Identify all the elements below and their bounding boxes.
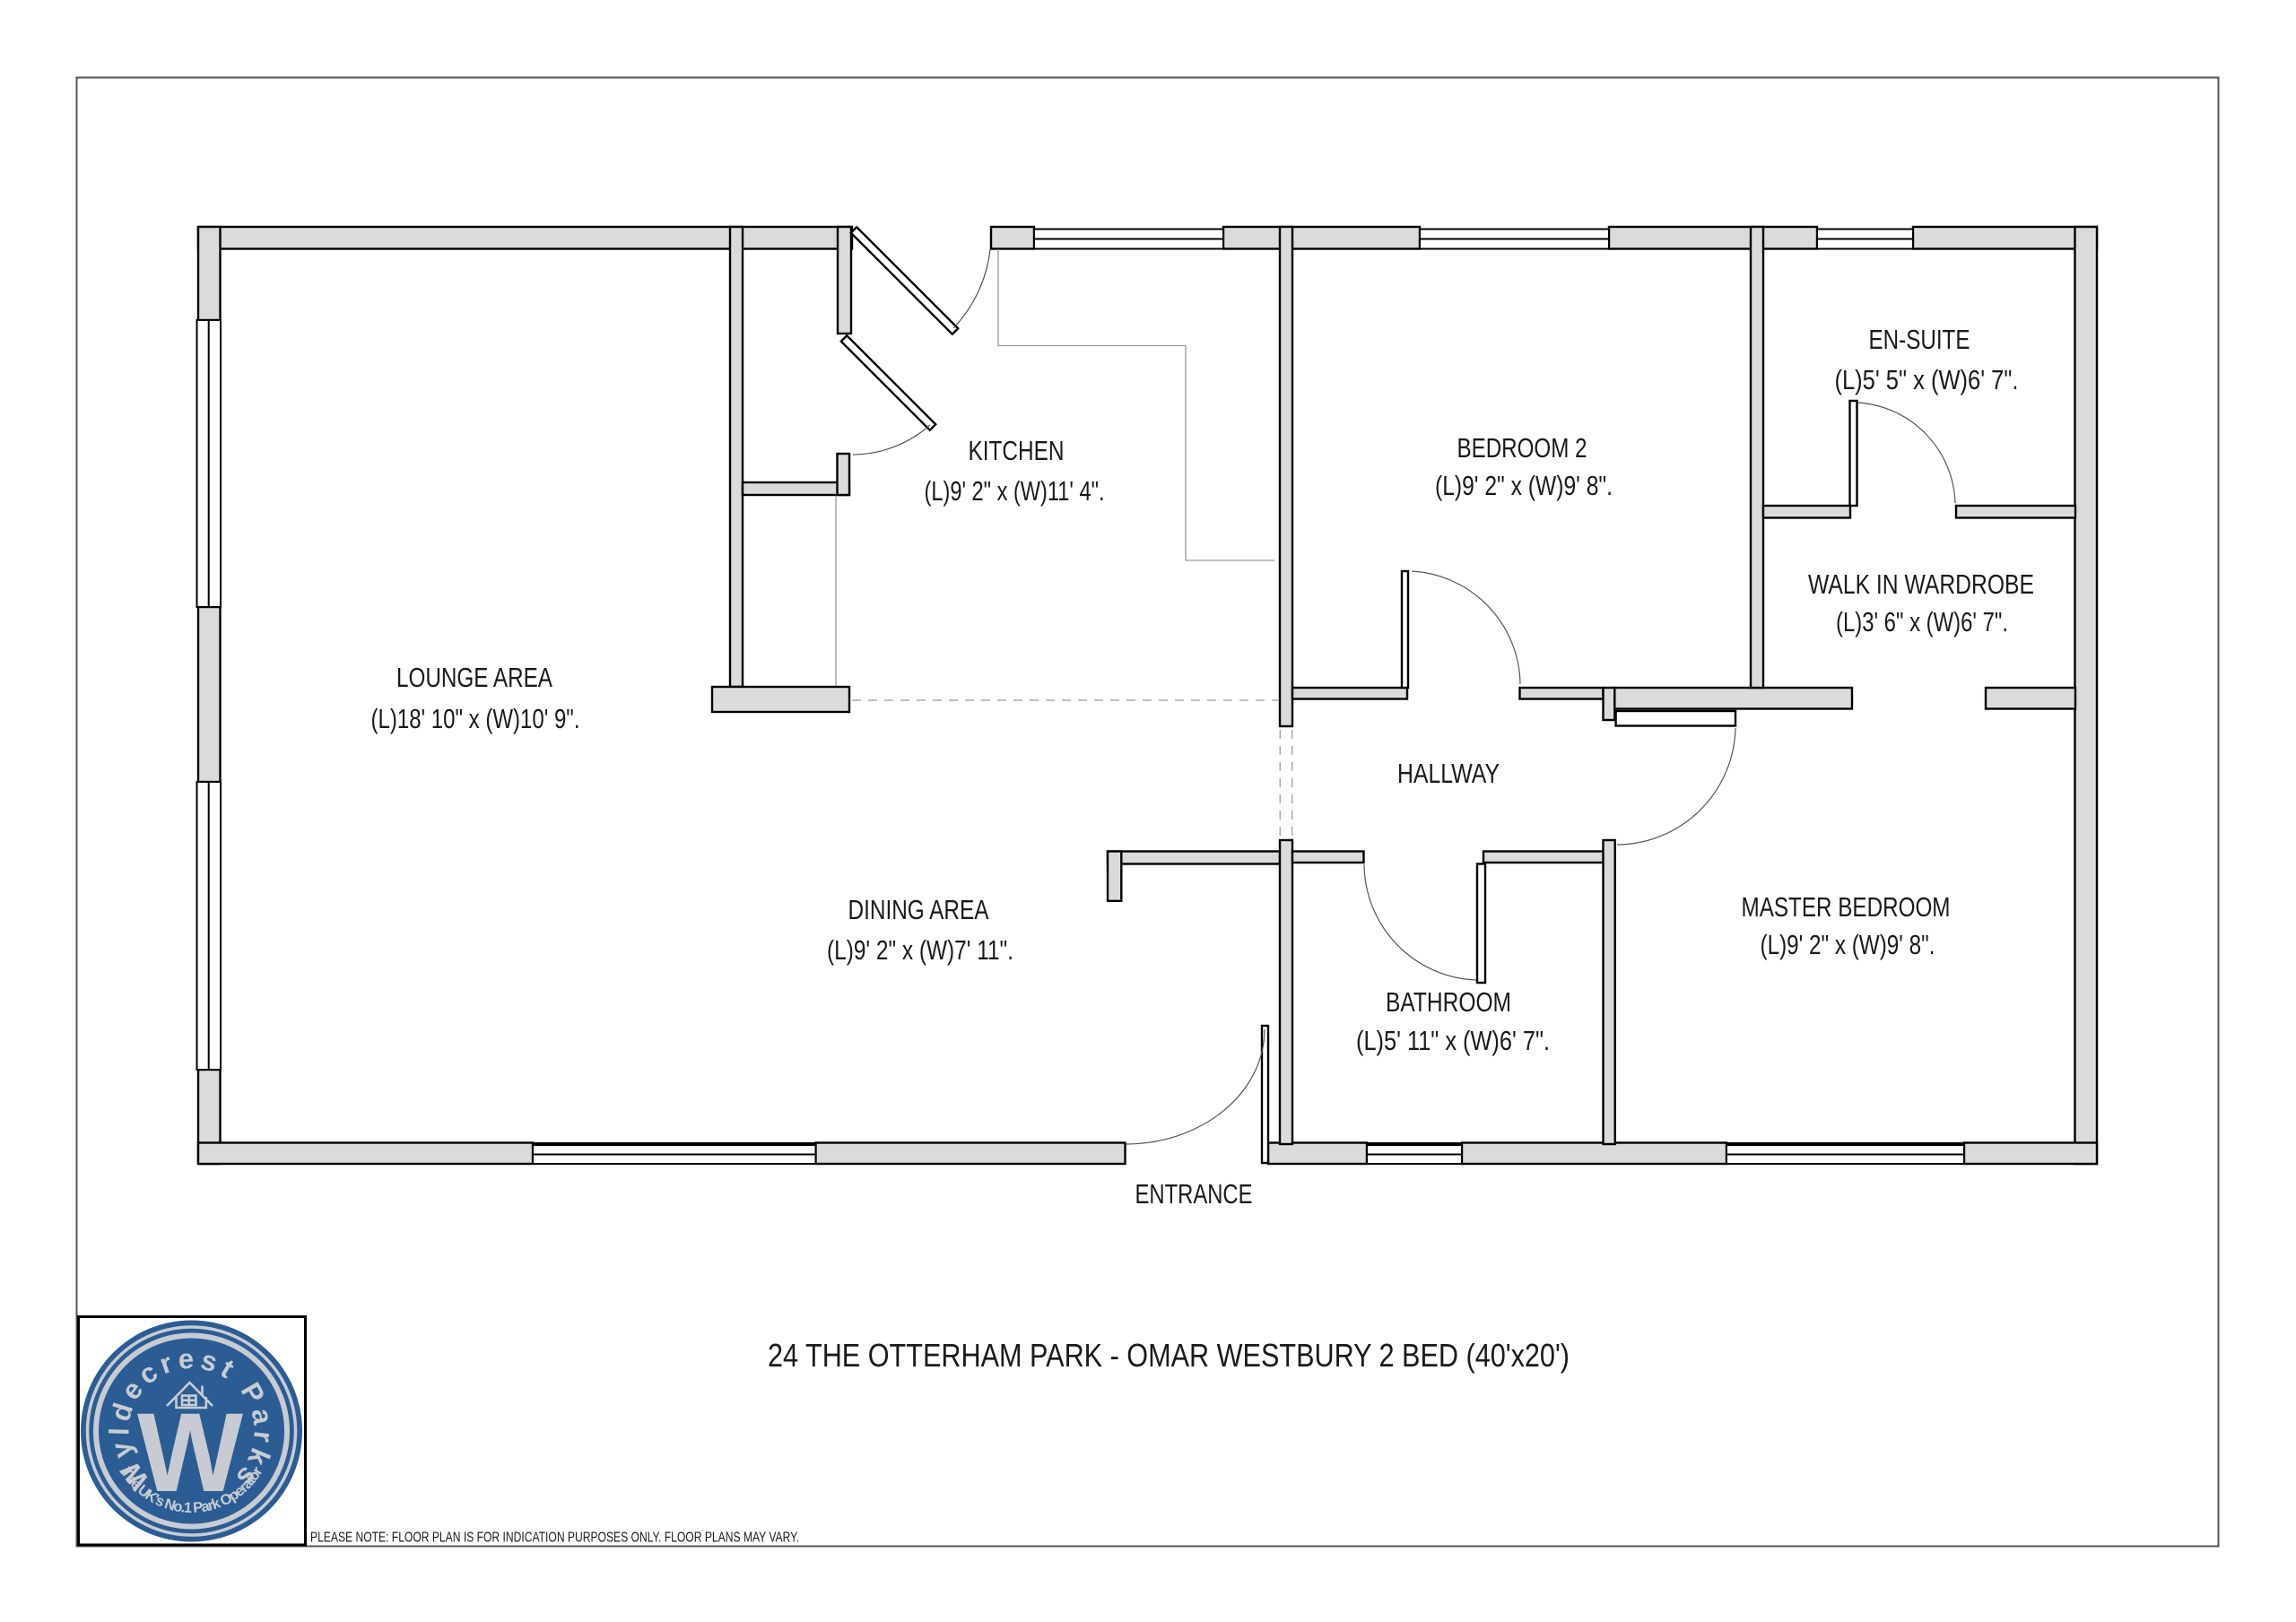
svg-text:W: W <box>137 1391 243 1515</box>
svg-text:EN-SUITE: EN-SUITE <box>1869 324 1970 355</box>
svg-text:BEDROOM 2: BEDROOM 2 <box>1457 432 1587 464</box>
svg-text:BATHROOM: BATHROOM <box>1386 986 1511 1018</box>
svg-text:(L)5' 11" x (W)6' 7".: (L)5' 11" x (W)6' 7". <box>1356 1025 1550 1056</box>
svg-text:(L)5' 5" x (W)6' 7".: (L)5' 5" x (W)6' 7". <box>1835 364 2019 395</box>
svg-text:(L)9' 2" x (W)7' 11".: (L)9' 2" x (W)7' 11". <box>827 934 1013 966</box>
svg-text:(L)9' 2" x (W)11' 4".: (L)9' 2" x (W)11' 4". <box>925 475 1105 507</box>
svg-text:DINING AREA: DINING AREA <box>848 894 989 925</box>
svg-text:(L)9' 2" x (W)9' 8".: (L)9' 2" x (W)9' 8". <box>1761 929 1935 960</box>
svg-text:ENTRANCE: ENTRANCE <box>1135 1178 1253 1210</box>
svg-text:MASTER BEDROOM: MASTER BEDROOM <box>1742 891 1951 923</box>
svg-text:HALLWAY: HALLWAY <box>1397 758 1500 789</box>
svg-text:(L)3' 6" x (W)6' 7".: (L)3' 6" x (W)6' 7". <box>1836 606 2008 638</box>
svg-text:PLEASE NOTE: FLOOR PLAN IS FOR: PLEASE NOTE: FLOOR PLAN IS FOR INDICATIO… <box>310 1531 799 1546</box>
svg-text:KITCHEN: KITCHEN <box>969 435 1065 466</box>
svg-text:LOUNGE AREA: LOUNGE AREA <box>396 662 552 693</box>
svg-text:(L)18' 10" x (W)10' 9".: (L)18' 10" x (W)10' 9". <box>371 703 580 734</box>
svg-text:WALK IN WARDROBE: WALK IN WARDROBE <box>1808 568 2034 600</box>
svg-text:(L)9' 2" x (W)9' 8".: (L)9' 2" x (W)9' 8". <box>1435 470 1613 501</box>
svg-text:24 THE OTTERHAM PARK - OMAR WE: 24 THE OTTERHAM PARK - OMAR WESTBURY 2 B… <box>768 1337 1570 1374</box>
